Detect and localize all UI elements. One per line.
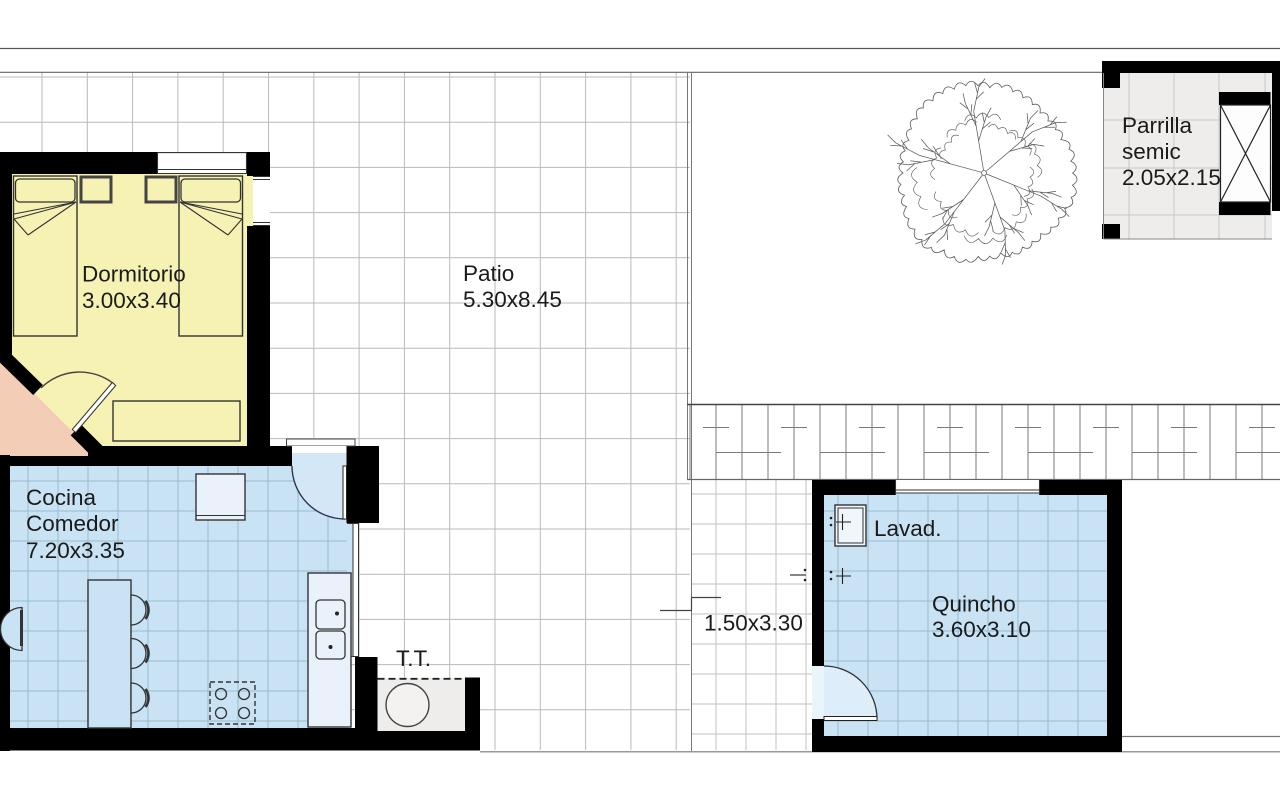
svg-text:Quincho: Quincho: [932, 592, 1016, 617]
svg-text:5.30x8.45: 5.30x8.45: [463, 287, 562, 312]
svg-text:Cocina: Cocina: [26, 485, 97, 510]
svg-text:Lavad.: Lavad.: [874, 516, 942, 541]
svg-text:semic: semic: [1122, 139, 1181, 164]
svg-text:2.05x2.15: 2.05x2.15: [1122, 165, 1221, 190]
svg-text:7.20x3.35: 7.20x3.35: [26, 538, 125, 563]
svg-text:3.00x3.40: 3.00x3.40: [82, 288, 181, 313]
svg-text:Patio: Patio: [463, 261, 514, 286]
svg-text:3.60x3.10: 3.60x3.10: [932, 617, 1031, 642]
svg-text:Dormitorio: Dormitorio: [82, 262, 186, 287]
svg-text:Parrilla: Parrilla: [1122, 113, 1193, 138]
svg-text:Comedor: Comedor: [26, 511, 119, 536]
svg-text:1.50x3.30: 1.50x3.30: [704, 611, 803, 636]
svg-text:T.T.: T.T.: [396, 646, 431, 671]
